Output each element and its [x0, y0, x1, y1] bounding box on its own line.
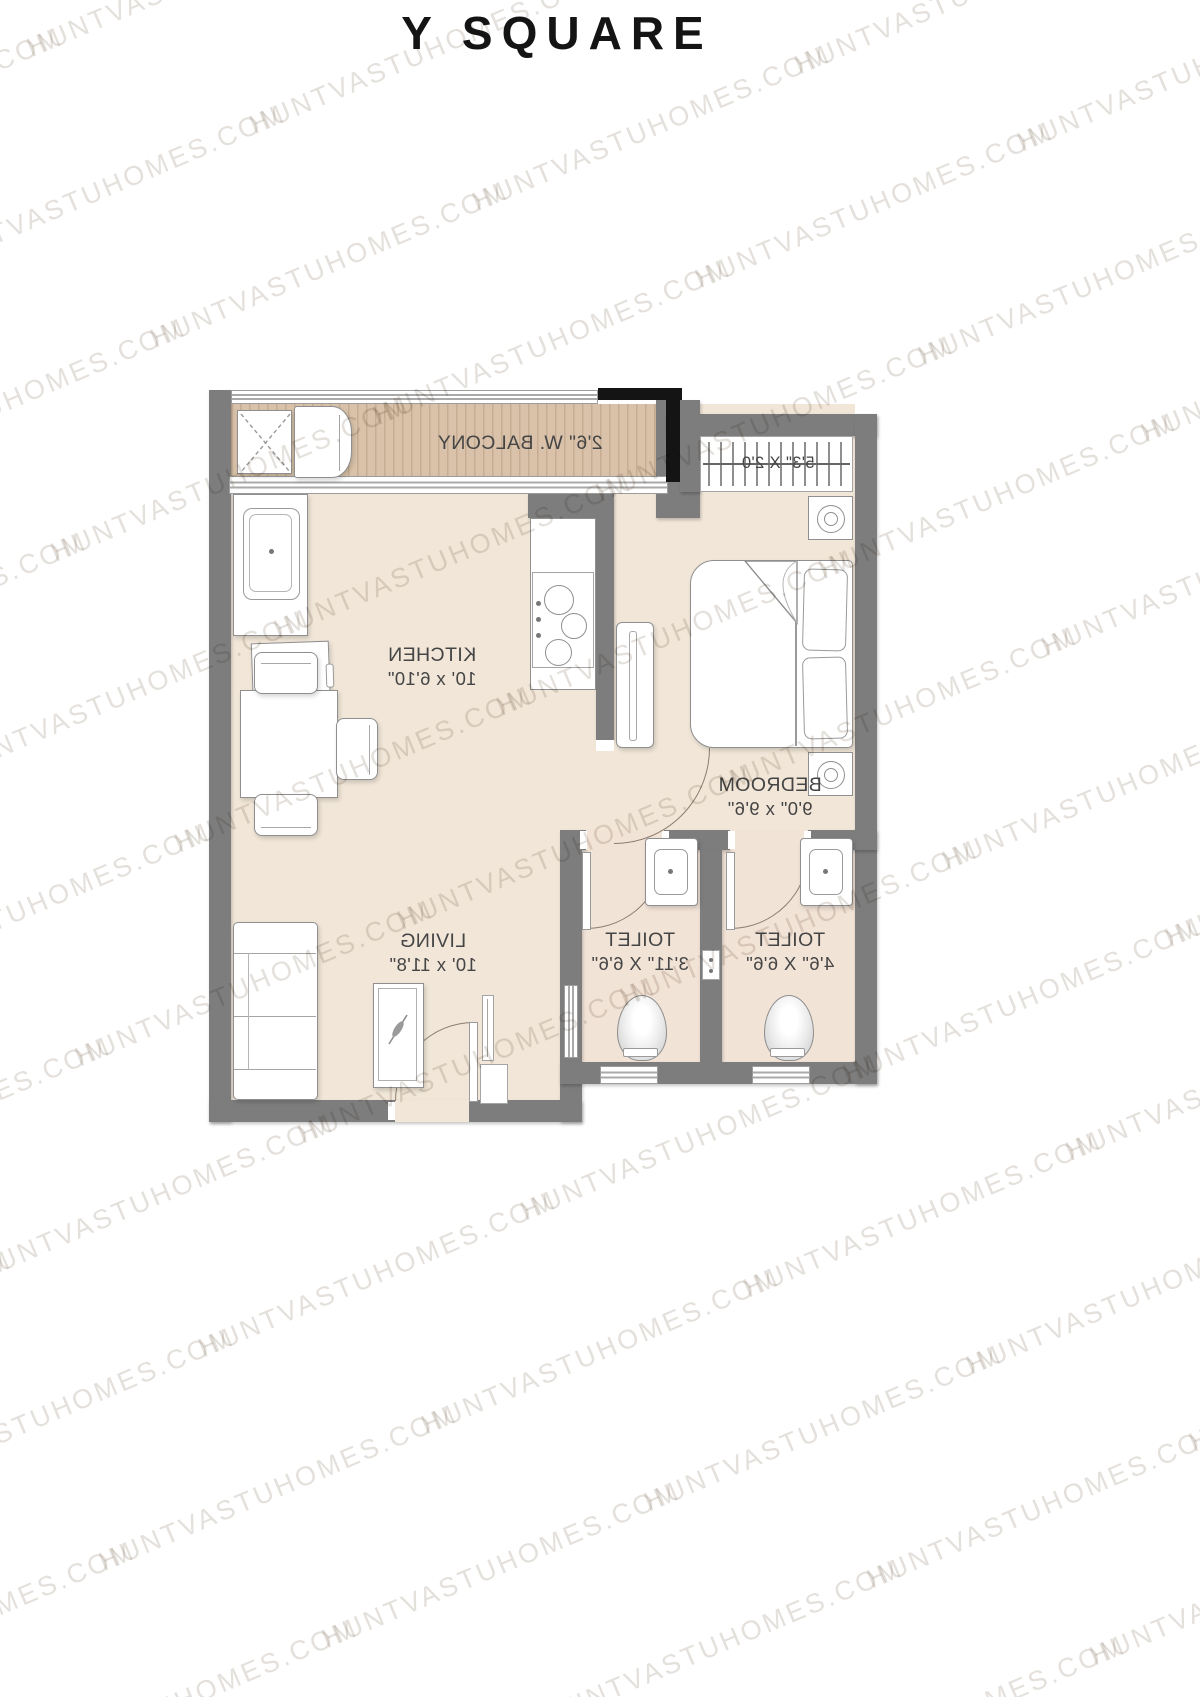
hob-knob [536, 601, 541, 606]
dining-table [240, 690, 338, 798]
floor-plan: 2'6" W. BALCONY 5'3" X 2'0 KITCHEN 10' x… [0, 0, 1200, 1697]
washbasin-right [800, 838, 853, 906]
bedroom-name: BEDROOM [660, 774, 880, 797]
entry-door-gap [395, 1100, 469, 1122]
dining-chair-top [254, 652, 318, 694]
living-dims: 10' x 11'8" [323, 953, 543, 976]
wardrobe-slider [629, 631, 637, 741]
toilet-left-name: TOILET [565, 929, 715, 952]
bedroom-dims: 9'0" x 9'6" [660, 797, 880, 820]
wall-stub-kitchen [528, 494, 614, 518]
blanket-fold-icon [739, 559, 801, 629]
tv-unit [373, 983, 424, 1088]
kitchen-sink [243, 508, 300, 600]
duct-box [237, 410, 292, 474]
dining-chair-right [336, 718, 378, 780]
shoe-panel-line [487, 999, 488, 1057]
wall-kitchen-bedroom [596, 518, 614, 740]
sink-drain [269, 549, 274, 554]
wardrobe [616, 622, 654, 748]
washing-machine [294, 406, 352, 478]
outside-mask-bottom-right [566, 1084, 906, 1144]
living-label: LIVING 10' x 11'8" [323, 930, 543, 976]
entry-door-leaf [469, 1022, 478, 1102]
toilet-right-label: TOILET 4'6" X 6'6" [715, 929, 865, 975]
sofa-line [234, 1016, 316, 1017]
bedroom-label: BEDROOM 9'0" x 9'6" [660, 774, 880, 820]
wall-top-right [666, 414, 877, 436]
burner-icon [561, 613, 587, 639]
balcony-label: 2'6" W. BALCONY [370, 432, 670, 455]
page: Y SQUARE [0, 0, 1200, 1697]
washbasin-left [645, 838, 698, 906]
living-name: LIVING [323, 930, 543, 953]
sofa-back-line [248, 953, 249, 1069]
shoe-panel [482, 995, 494, 1061]
hob-knob [536, 633, 541, 638]
burner-icon [544, 585, 574, 615]
sofa-line [234, 953, 316, 954]
kitchen-counter [233, 494, 308, 636]
bed-pillow [802, 568, 848, 651]
kitchen-name: KITCHEN [322, 644, 542, 667]
basin-drain [668, 869, 673, 874]
tv-mark-icon [374, 984, 425, 1089]
entry-side-box [480, 1064, 508, 1104]
wc-hinge [623, 1048, 658, 1057]
living-side-window [564, 985, 578, 1058]
toilet-left-dims: 3'11" X 6'6" [565, 952, 715, 975]
kitchen-label: KITCHEN 10' x 6'10" [322, 644, 542, 690]
duct-x-icon [238, 411, 293, 475]
wall-right [855, 414, 877, 1084]
toilet-right-dims: 4'6" X 6'6" [715, 952, 865, 975]
nightstand-top [808, 496, 853, 540]
balcony-window-band [231, 390, 598, 404]
basin-drain [823, 869, 828, 874]
chair-seat-line [365, 725, 370, 775]
lamp-icon-inner [824, 512, 838, 526]
toilet-right-name: TOILET [715, 929, 865, 952]
kitchen-dims: 10' x 6'10" [322, 667, 542, 690]
bed-pillow [802, 656, 848, 739]
bed [690, 560, 853, 748]
utility-label-text: 5'3" X 2'0 [698, 454, 858, 473]
door-cap-1 [580, 831, 587, 849]
utility-label: 5'3" X 2'0 [698, 454, 858, 473]
vent-flank-wall [680, 436, 700, 492]
toilet-left-sill [600, 1066, 658, 1084]
sofa [233, 922, 318, 1100]
wall-left [209, 390, 231, 1122]
kitchen-window-band [229, 476, 668, 494]
toilet-right-door-leaf [726, 852, 735, 930]
burner-icon [545, 639, 572, 666]
wall-cap-bedroom-door [596, 740, 614, 751]
toilet-left-door-leaf [582, 852, 591, 930]
wc-hinge [770, 1048, 805, 1057]
chair-seat-line [261, 659, 311, 664]
toilet-right-door-gap [730, 830, 806, 850]
balcony-label-text: 2'6" W. BALCONY [370, 432, 670, 455]
toilet-right-sill [752, 1066, 810, 1084]
dining-chair-bottom [254, 794, 318, 836]
washing-machine-panel [339, 415, 343, 471]
hob-knob [536, 617, 541, 622]
door-cap-3 [728, 831, 735, 849]
chair-seat-line [261, 823, 311, 828]
sofa-line [234, 1069, 316, 1070]
entry-door-cap [388, 1102, 395, 1120]
toilet-left-label: TOILET 3'11" X 6'6" [565, 929, 715, 975]
